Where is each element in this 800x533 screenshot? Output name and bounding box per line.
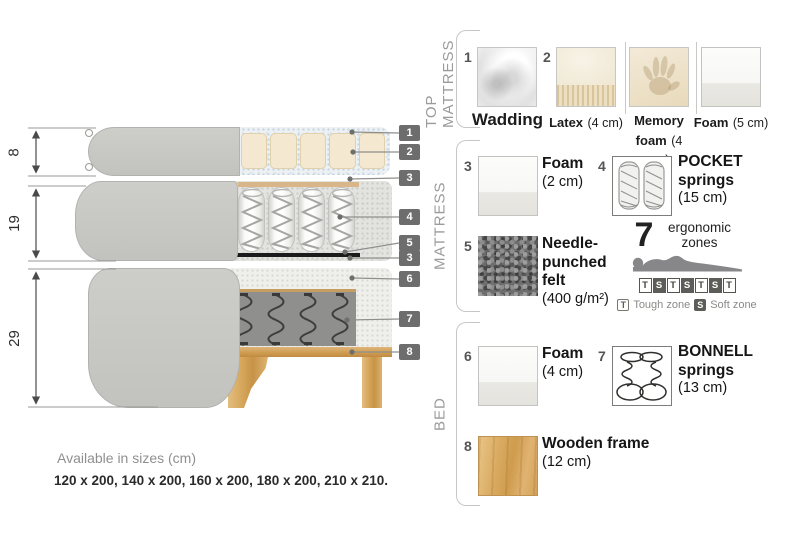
soft-zone-key: S bbox=[694, 299, 706, 311]
felt-thumbnail bbox=[478, 236, 538, 296]
callout-8: 8 bbox=[399, 344, 420, 360]
foam-5cm-caption: Foam (5 cm) bbox=[671, 113, 791, 133]
needle-punched-felt-layer bbox=[232, 253, 360, 257]
latex-segment bbox=[241, 133, 267, 169]
section-title-top-mattress: TOP MATTRESS bbox=[430, 30, 450, 128]
item-number: 4 bbox=[598, 158, 606, 174]
item-number: 1 bbox=[464, 49, 472, 65]
mattress-fabric-cover bbox=[75, 181, 238, 261]
item-number: 5 bbox=[464, 238, 472, 254]
callout-3-bottom: 3 bbox=[399, 250, 420, 266]
available-sizes-list: 120 x 200, 140 x 200, 160 x 200, 180 x 2… bbox=[54, 473, 388, 488]
wooden-frame-thumbnail bbox=[478, 436, 538, 496]
item-number: 7 bbox=[598, 348, 606, 364]
callout-4: 4 bbox=[399, 209, 420, 225]
zone-block-soft: S bbox=[681, 278, 694, 293]
dimension-mattress: 19 bbox=[6, 215, 23, 232]
zone-block-soft: S bbox=[653, 278, 666, 293]
zone-block-tough: T bbox=[639, 278, 652, 293]
soft-zone-label: Soft zone bbox=[710, 299, 756, 311]
zone-block-tough: T bbox=[667, 278, 680, 293]
zones-label: ergonomic zones bbox=[659, 221, 739, 250]
topmattress-handle bbox=[85, 163, 93, 171]
pocket-spring-coil bbox=[328, 187, 355, 252]
ergonomic-zones: 7 ergonomic zones T S T S T S T T Tough … bbox=[602, 221, 772, 311]
lying-person-icon bbox=[628, 252, 746, 272]
pocket-spring-coil bbox=[268, 187, 295, 252]
item-number: 6 bbox=[464, 348, 472, 364]
foam-2cm-label: Foam (2 cm) bbox=[542, 155, 622, 191]
tough-zone-key: T bbox=[617, 299, 629, 311]
bonnell-springs-icon bbox=[613, 347, 670, 404]
latex-segment bbox=[270, 133, 296, 169]
foam-5cm-thumbnail bbox=[701, 47, 761, 107]
zone-block-tough: T bbox=[695, 278, 708, 293]
section-title-bed: BED bbox=[430, 322, 450, 506]
topmattress-handle bbox=[85, 129, 93, 137]
callout-5: 5 bbox=[399, 235, 420, 251]
callout-6: 6 bbox=[399, 271, 420, 287]
latex-segment bbox=[329, 133, 355, 169]
callout-2: 2 bbox=[399, 144, 420, 160]
tough-zone-label: Tough zone bbox=[633, 299, 690, 311]
bed-construction-infographic: 8 19 29 1 2 3 4 5 3 6 7 8 TOP MATTRESS 1… bbox=[0, 0, 800, 533]
pocket-springs-label: POCKET springs (15 cm) bbox=[678, 153, 762, 208]
item-number: 3 bbox=[464, 158, 472, 174]
foam-4cm-label: Foam (4 cm) bbox=[542, 345, 622, 381]
zones-count: 7 bbox=[635, 221, 654, 250]
wooden-plank bbox=[228, 347, 392, 357]
zones-legend: T Tough zone S Soft zone bbox=[602, 299, 772, 311]
wadding-thumbnail bbox=[477, 47, 537, 107]
bonnell-zigzag bbox=[230, 292, 356, 346]
wooden-frame-label: Wooden frame (12 cm) bbox=[542, 435, 692, 471]
zones-blocks: T S T S T S T bbox=[602, 278, 772, 293]
available-sizes-title: Available in sizes (cm) bbox=[57, 450, 196, 466]
zone-block-soft: S bbox=[709, 278, 722, 293]
foam-4cm-thumbnail bbox=[478, 346, 538, 406]
item-number: 2 bbox=[543, 49, 551, 65]
topmattress-latex-blocks bbox=[241, 133, 385, 169]
callout-3-top: 3 bbox=[399, 170, 420, 186]
pocket-spring-coil bbox=[298, 187, 325, 252]
hand-imprint-icon bbox=[630, 48, 688, 106]
latex-thumbnail bbox=[556, 47, 616, 107]
dimension-top-mattress: 8 bbox=[6, 148, 23, 156]
topmattress-fabric-cover bbox=[88, 127, 240, 176]
bed-fabric-skirt bbox=[88, 268, 240, 408]
callout-7: 7 bbox=[399, 311, 420, 327]
latex-segment bbox=[300, 133, 326, 169]
pocket-springs-thumbnail bbox=[612, 156, 672, 216]
bonnell-springs-area bbox=[230, 289, 356, 346]
zone-block-tough: T bbox=[723, 278, 736, 293]
wooden-leg-right bbox=[362, 357, 382, 408]
bonnell-springs-thumbnail bbox=[612, 346, 672, 406]
pocket-springs-row bbox=[238, 187, 359, 252]
divider bbox=[625, 42, 626, 114]
latex-segment bbox=[359, 133, 385, 169]
pocket-spring-coil bbox=[238, 187, 265, 252]
dimension-bed: 29 bbox=[6, 330, 23, 347]
bonnell-springs-label: BONNELL springs (13 cm) bbox=[678, 343, 766, 398]
divider bbox=[696, 42, 697, 114]
section-title-mattress: MATTRESS bbox=[430, 140, 450, 312]
callout-1: 1 bbox=[399, 125, 420, 141]
memory-foam-thumbnail bbox=[629, 47, 689, 107]
item-number: 8 bbox=[464, 438, 472, 454]
pocket-springs-icon bbox=[613, 157, 670, 214]
ergonomic-zones-header: 7 ergonomic zones bbox=[602, 221, 772, 250]
foam-2cm-thumbnail bbox=[478, 156, 538, 216]
